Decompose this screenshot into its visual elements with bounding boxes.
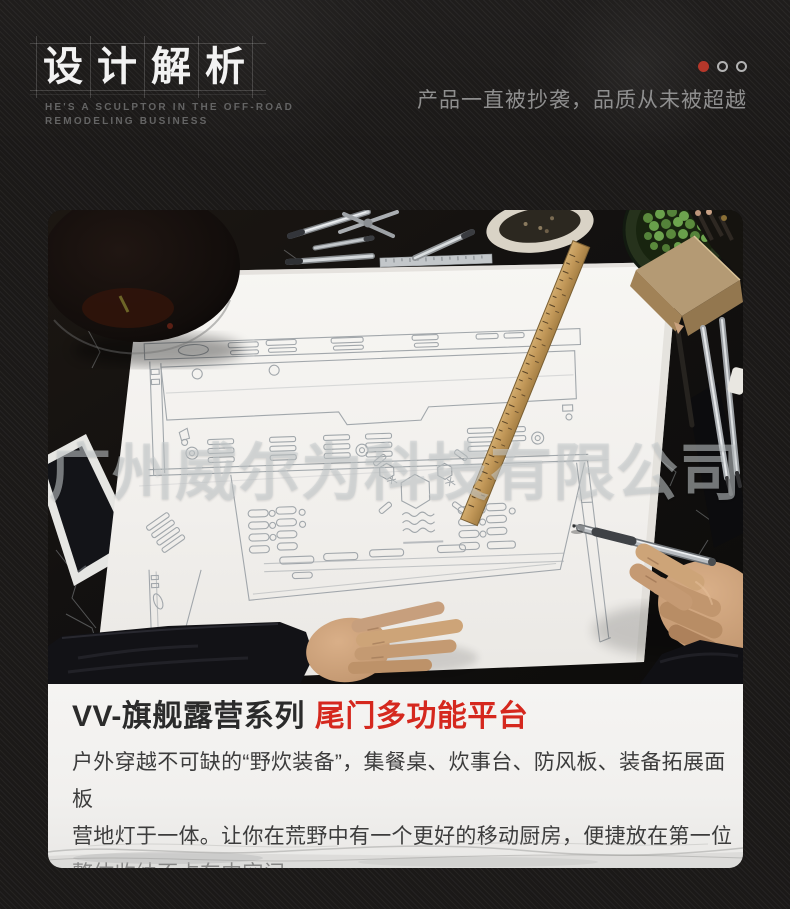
product-card: 广州威尔为科技有限公司 VV-旗舰露营系列尾门多功能平台 户外穿越不可缺的“野炊… bbox=[48, 210, 743, 868]
carousel-dot-icon[interactable] bbox=[717, 61, 728, 72]
carousel-dots bbox=[698, 61, 747, 72]
description-line: 户外穿越不可缺的“野炊装备”，集餐桌、炊事台、防风板、装备拓展面板 bbox=[72, 744, 743, 818]
header-subtitle: HE'S A SCULPTOR IN THE OFF-ROADREMODELIN… bbox=[45, 101, 294, 129]
highlight-title: 尾门多功能平台 bbox=[315, 700, 529, 733]
page-title: 设 计 解 析 bbox=[36, 43, 252, 90]
sketch-scene bbox=[48, 210, 743, 684]
design-sketch-photo: 广州威尔为科技有限公司 bbox=[48, 210, 743, 684]
page: 设 计 解 析 HE'S A SCULPTOR IN THE OFF-ROADR… bbox=[0, 0, 790, 909]
subtitle-line2: REMODELING BUSINESS bbox=[45, 116, 208, 127]
carousel-dot-active-icon[interactable] bbox=[698, 61, 709, 72]
carousel-dot-icon[interactable] bbox=[736, 61, 747, 72]
title-char: 计 bbox=[90, 43, 144, 90]
subtitle-line1: HE'S A SCULPTOR IN THE OFF-ROAD bbox=[45, 102, 294, 113]
series-title: VV-旗舰露营系列 bbox=[72, 700, 305, 733]
ink-wash-texture bbox=[48, 822, 743, 868]
title-char: 析 bbox=[198, 43, 252, 90]
product-info-panel: VV-旗舰露营系列尾门多功能平台 户外穿越不可缺的“野炊装备”，集餐桌、炊事台、… bbox=[48, 684, 743, 868]
header-slogan: 产品一直被抄袭，品质从未被超越 bbox=[417, 84, 747, 114]
product-title: VV-旗舰露营系列尾门多功能平台 bbox=[72, 699, 743, 735]
title-char: 设 bbox=[36, 43, 90, 90]
title-char: 解 bbox=[144, 43, 198, 90]
